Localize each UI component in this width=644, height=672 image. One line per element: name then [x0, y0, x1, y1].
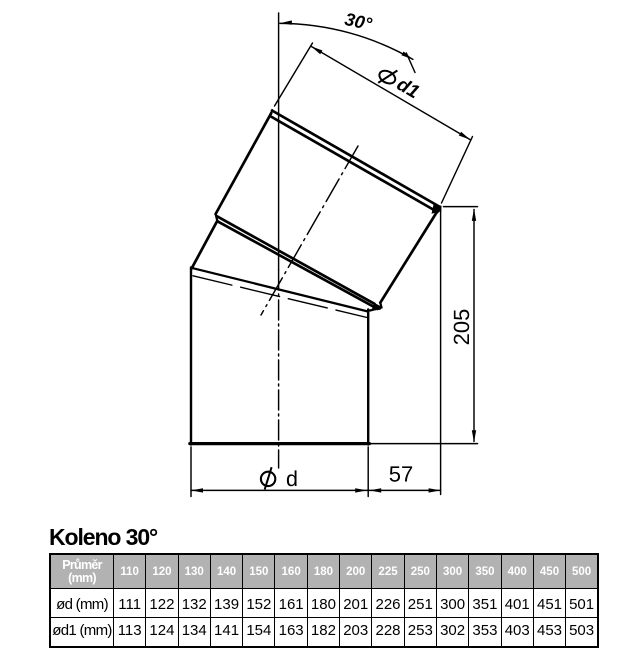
svg-text:205: 205 — [449, 309, 474, 346]
svg-text:d1: d1 — [393, 74, 423, 103]
svg-text:30°: 30° — [343, 9, 375, 34]
svg-text:57: 57 — [389, 462, 413, 487]
svg-text:d: d — [286, 467, 298, 491]
